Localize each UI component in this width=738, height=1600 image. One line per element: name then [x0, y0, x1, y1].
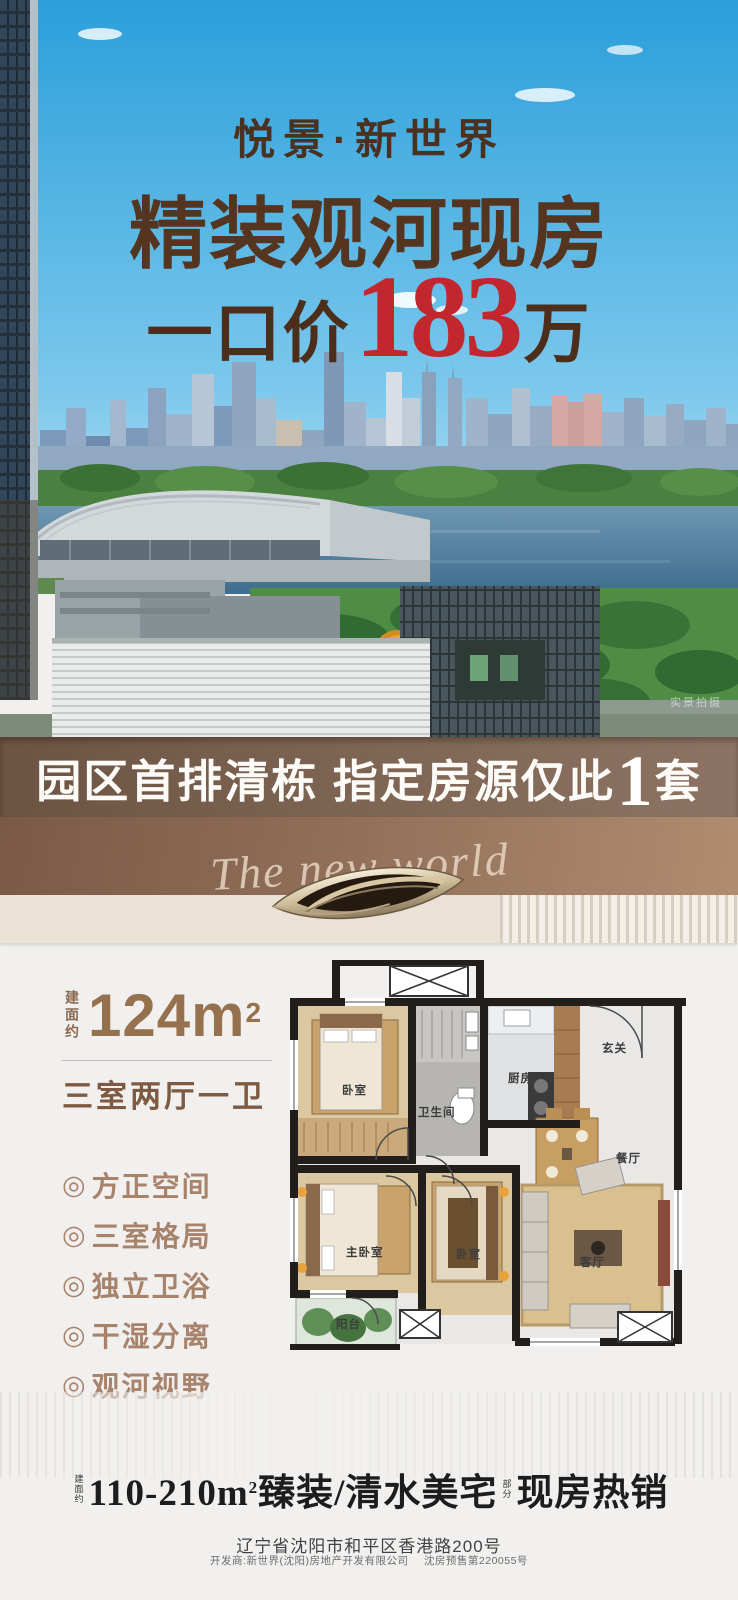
- divider: [62, 1060, 272, 1061]
- area-sup: 2: [245, 997, 262, 1028]
- feature-list: ◎ 方正空间 ◎ 三室格局 ◎ 独立卫浴 ◎ 干湿分离 ◎ 观河视野: [62, 1160, 292, 1410]
- range-sup: 2: [249, 1478, 259, 1497]
- feature-label: 方正空间: [92, 1165, 212, 1205]
- ring-bullet-icon: ◎: [62, 1170, 88, 1201]
- feature-item: ◎ 方正空间: [62, 1160, 292, 1210]
- floor-plan: 卧室 卫生间 厨房 玄关 餐厅 主卧室 卧室 客厅 阳台: [290, 960, 686, 1367]
- feature-label: 三室格局: [92, 1215, 212, 1255]
- sales-status: 现房热销: [516, 1462, 668, 1516]
- promo-banner: 园区首排清栋 指定房源仅此 1 套: [0, 737, 738, 817]
- area-value: 124m2: [88, 986, 262, 1046]
- range-text: 110-210m2臻装/清水美宅: [89, 1462, 498, 1516]
- feature-label: 干湿分离: [92, 1315, 212, 1355]
- area-label: 建面约: [62, 990, 82, 1042]
- room-label-bathroom: 卫生间: [418, 1105, 456, 1119]
- feature-item: ◎ 独立卫浴: [62, 1260, 292, 1310]
- unit-info-panel: 建面约 124m2 三室两厅一卫 ◎ 方正空间 ◎ 三室格局 ◎ 独立卫浴 ◎ …: [62, 986, 292, 1410]
- real-estate-poster: 悦景·新世界 精装观河现房 一口价 183 万 实景拍摄 园区首排清栋 指定房源…: [0, 0, 738, 1600]
- fine-print: 开发商:新世界(沈阳)房地产开发有限公司 沈房预售第220055号: [0, 1553, 738, 1568]
- room-label-dining: 餐厅: [615, 1151, 641, 1165]
- price-prefix: 一口价: [147, 280, 351, 376]
- banner-text-main: 园区首排清栋 指定房源仅此: [36, 745, 615, 810]
- banner-highlight-number: 1: [617, 745, 653, 817]
- city-photo: 悦景·新世界 精装观河现房 一口价 183 万 实景拍摄: [0, 0, 738, 737]
- area-range-line: 建面约 110-210m2臻装/清水美宅 部分 现房热销: [0, 1462, 738, 1516]
- area-row: 建面约 124m2: [62, 986, 292, 1046]
- room-label-entry: 玄关: [602, 1041, 627, 1055]
- presale-license: 沈房预售第220055号: [424, 1555, 528, 1567]
- feature-item: ◎ 干湿分离: [62, 1310, 292, 1360]
- range-prefix: 建面约: [73, 1474, 86, 1504]
- feature-item: ◎ 三室格局: [62, 1210, 292, 1260]
- partial-prefix: 部分: [500, 1479, 513, 1499]
- range-tail: 臻装/清水美宅: [258, 1473, 497, 1514]
- price-suffix: 万: [524, 280, 592, 376]
- feature-label: 独立卫浴: [92, 1265, 212, 1305]
- unit-layout: 三室两厅一卫: [62, 1071, 292, 1116]
- room-label-master-bedroom: 主卧室: [346, 1245, 384, 1259]
- ring-bullet-icon: ◎: [62, 1320, 88, 1351]
- area-number: 124m: [88, 982, 245, 1049]
- range-number: 110-210m: [89, 1473, 249, 1514]
- room-label-kitchen: 厨房: [508, 1071, 533, 1085]
- price-row: 一口价 183 万: [0, 258, 738, 376]
- developer-info: 开发商:新世界(沈阳)房地产开发有限公司: [210, 1555, 408, 1567]
- room-label-bedroom1: 卧室: [342, 1083, 367, 1097]
- ring-bullet-icon: ◎: [62, 1270, 88, 1301]
- banner-text-tail: 套: [655, 745, 702, 810]
- deco-ribbed-stripes: [500, 895, 738, 943]
- room-label-living: 客厅: [579, 1255, 605, 1269]
- project-name: 悦景·新世界: [0, 106, 738, 167]
- room-label-bedroom2: 卧室: [456, 1247, 481, 1261]
- room-label-balcony: 阳台: [336, 1317, 361, 1331]
- price-number: 183: [355, 258, 520, 376]
- ring-bullet-icon: ◎: [62, 1220, 88, 1251]
- photo-watermark: 实景拍摄: [670, 694, 722, 710]
- metal-leaf-ornament-icon: [268, 856, 468, 935]
